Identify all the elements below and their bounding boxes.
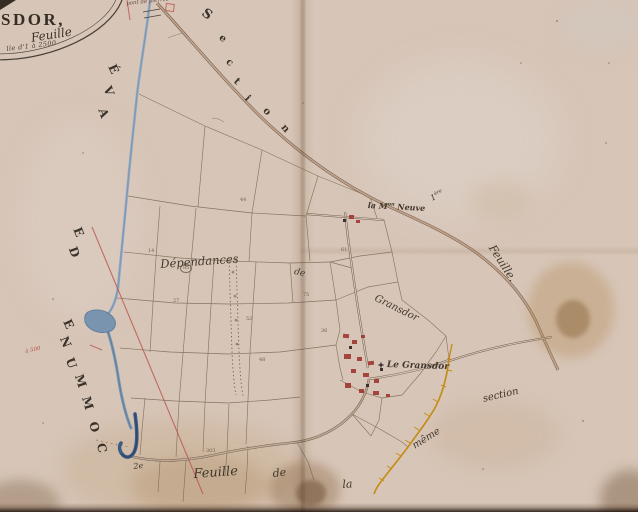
la-bottom-label: la [342, 478, 353, 490]
paper-specks [0, 0, 2, 2]
de-bottom-label: de [272, 467, 287, 479]
parcel-number: 36 [321, 329, 327, 334]
parcel-lines [96, 32, 449, 502]
parcel-number: 44 [240, 198, 246, 203]
label-part: on [388, 201, 395, 207]
map-linework [0, 0, 638, 512]
parcel-number: 303 [206, 449, 216, 454]
label-part: la M [368, 200, 388, 211]
parcel-number: 48 [259, 358, 265, 363]
cadastral-map: SDOR, Feuille lle d'1 à 2500 pont de pie… [0, 0, 638, 512]
bottom-road [129, 379, 369, 460]
maison-neuve-label: la Mon Neuve [368, 201, 426, 212]
red-survey-line [90, 0, 203, 494]
chapel-symbol [378, 362, 384, 368]
parcel-number: 61 [341, 248, 347, 253]
label-part: Neuve [397, 202, 425, 213]
parcel-number: 52 [246, 317, 252, 322]
parcel-number: 14 [148, 249, 154, 254]
stream-pool [85, 310, 116, 333]
deux-e-label: 2e [133, 462, 144, 471]
dotted-path [229, 258, 243, 396]
bridge-symbol [143, 9, 161, 18]
main-road [157, 3, 558, 370]
parcel-number: 75 [303, 293, 309, 298]
lane-north-south [345, 212, 368, 368]
corner-shadow [0, 0, 16, 10]
parcel-number: 27 [173, 299, 179, 304]
fold-crease-core [301, 0, 305, 512]
road-branch-east [449, 337, 552, 361]
photo-edge-shadow [0, 503, 638, 512]
feuille-bottom-label: Feuille [193, 465, 238, 481]
horizontal-crease [300, 246, 638, 256]
